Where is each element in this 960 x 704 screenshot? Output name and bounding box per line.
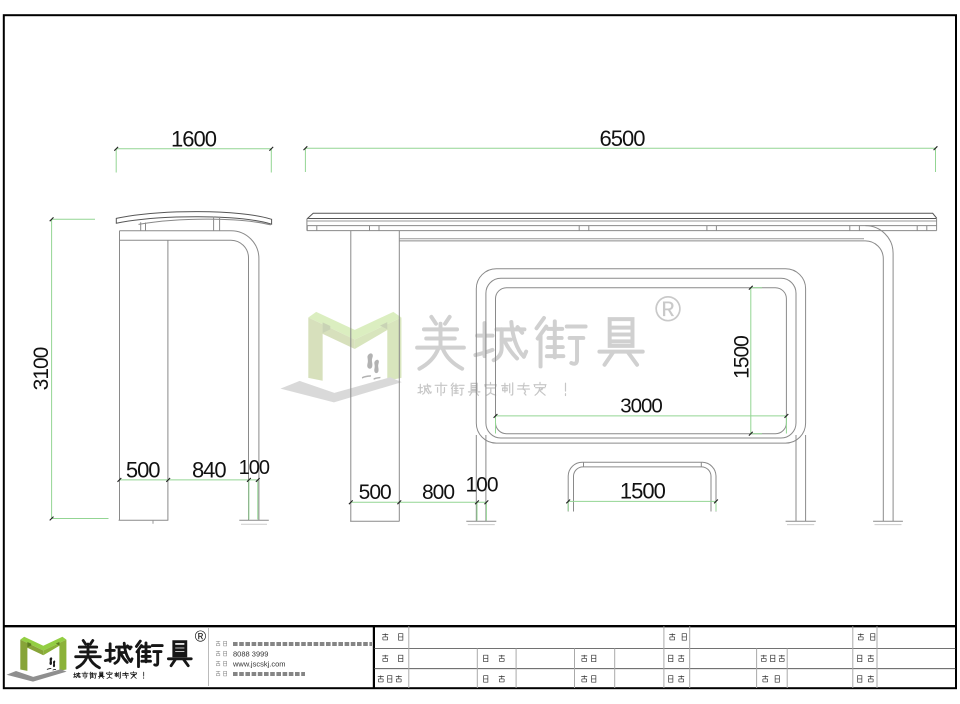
svg-text:1500: 1500 (731, 336, 754, 379)
svg-text:100: 100 (239, 457, 270, 479)
svg-text:1600: 1600 (171, 127, 217, 152)
svg-text:®: ® (195, 629, 207, 646)
svg-text:www.jscskj.com: www.jscskj.com (232, 660, 286, 669)
svg-text:6500: 6500 (600, 126, 646, 151)
svg-text:800: 800 (422, 481, 454, 504)
svg-text:500: 500 (126, 458, 160, 483)
svg-text:1500: 1500 (620, 478, 666, 503)
svg-text:3100: 3100 (30, 347, 53, 390)
svg-text:100: 100 (465, 474, 497, 497)
svg-text:®: ® (655, 288, 682, 329)
svg-text:3000: 3000 (620, 394, 662, 417)
svg-text:500: 500 (359, 481, 391, 504)
svg-text:8088 3999: 8088 3999 (233, 650, 268, 659)
svg-text:840: 840 (192, 458, 226, 483)
